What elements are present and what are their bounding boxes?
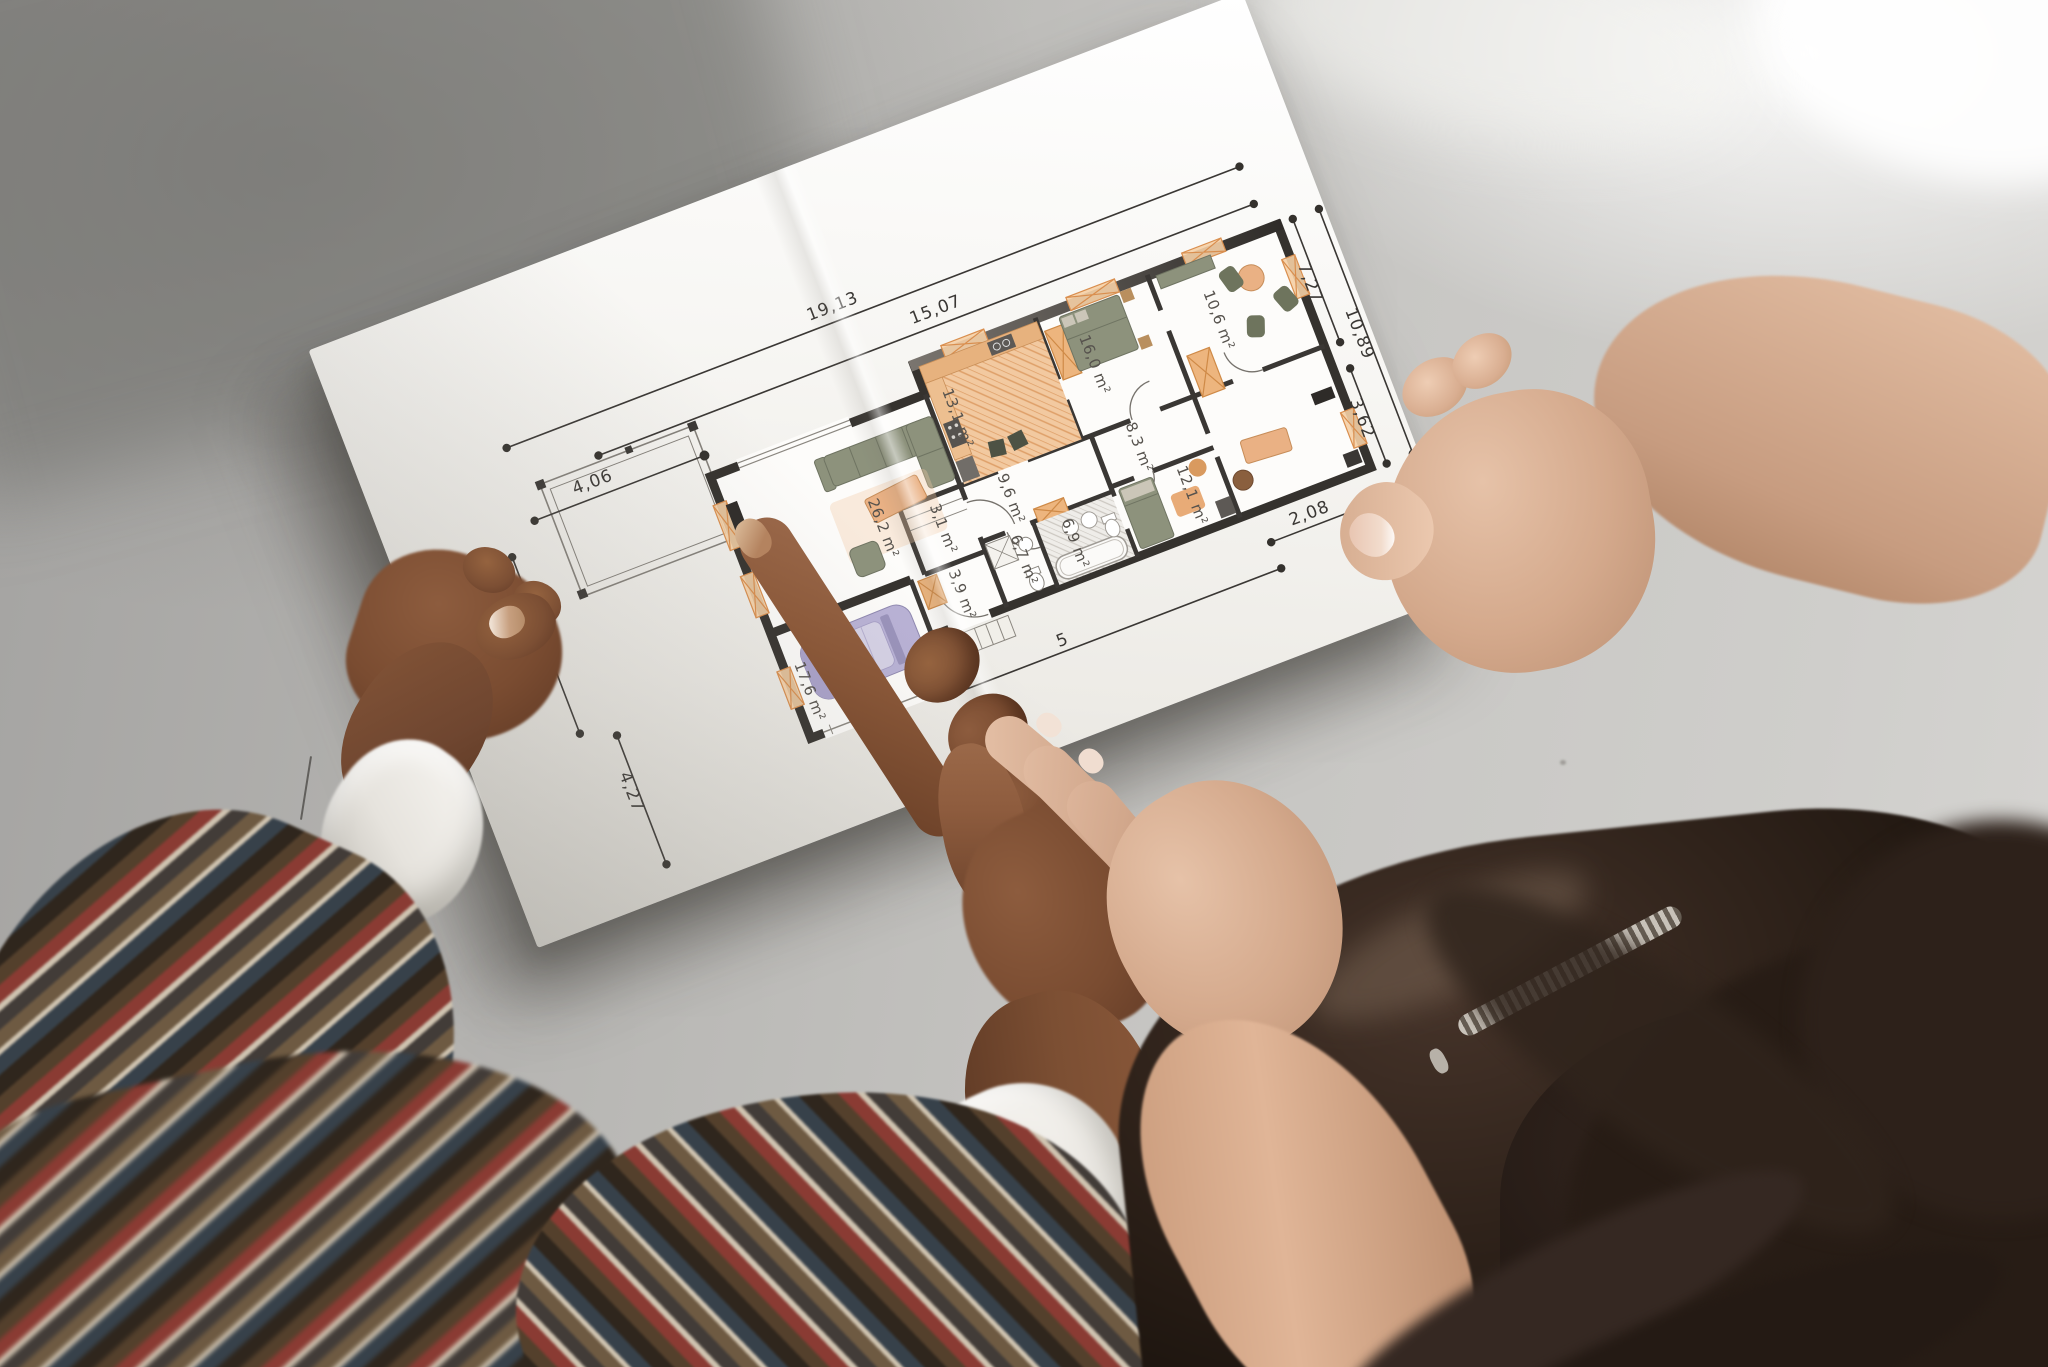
loose-thread [300, 756, 312, 820]
floor-light-streak-2 [1226, 0, 1775, 184]
floor-speck [1560, 760, 1566, 765]
floor-light-streak [1719, 0, 2048, 240]
photo-scene: 19,13 15,07 4,06 6,62 4,27 7,27 10,89 3,… [0, 0, 2048, 1367]
